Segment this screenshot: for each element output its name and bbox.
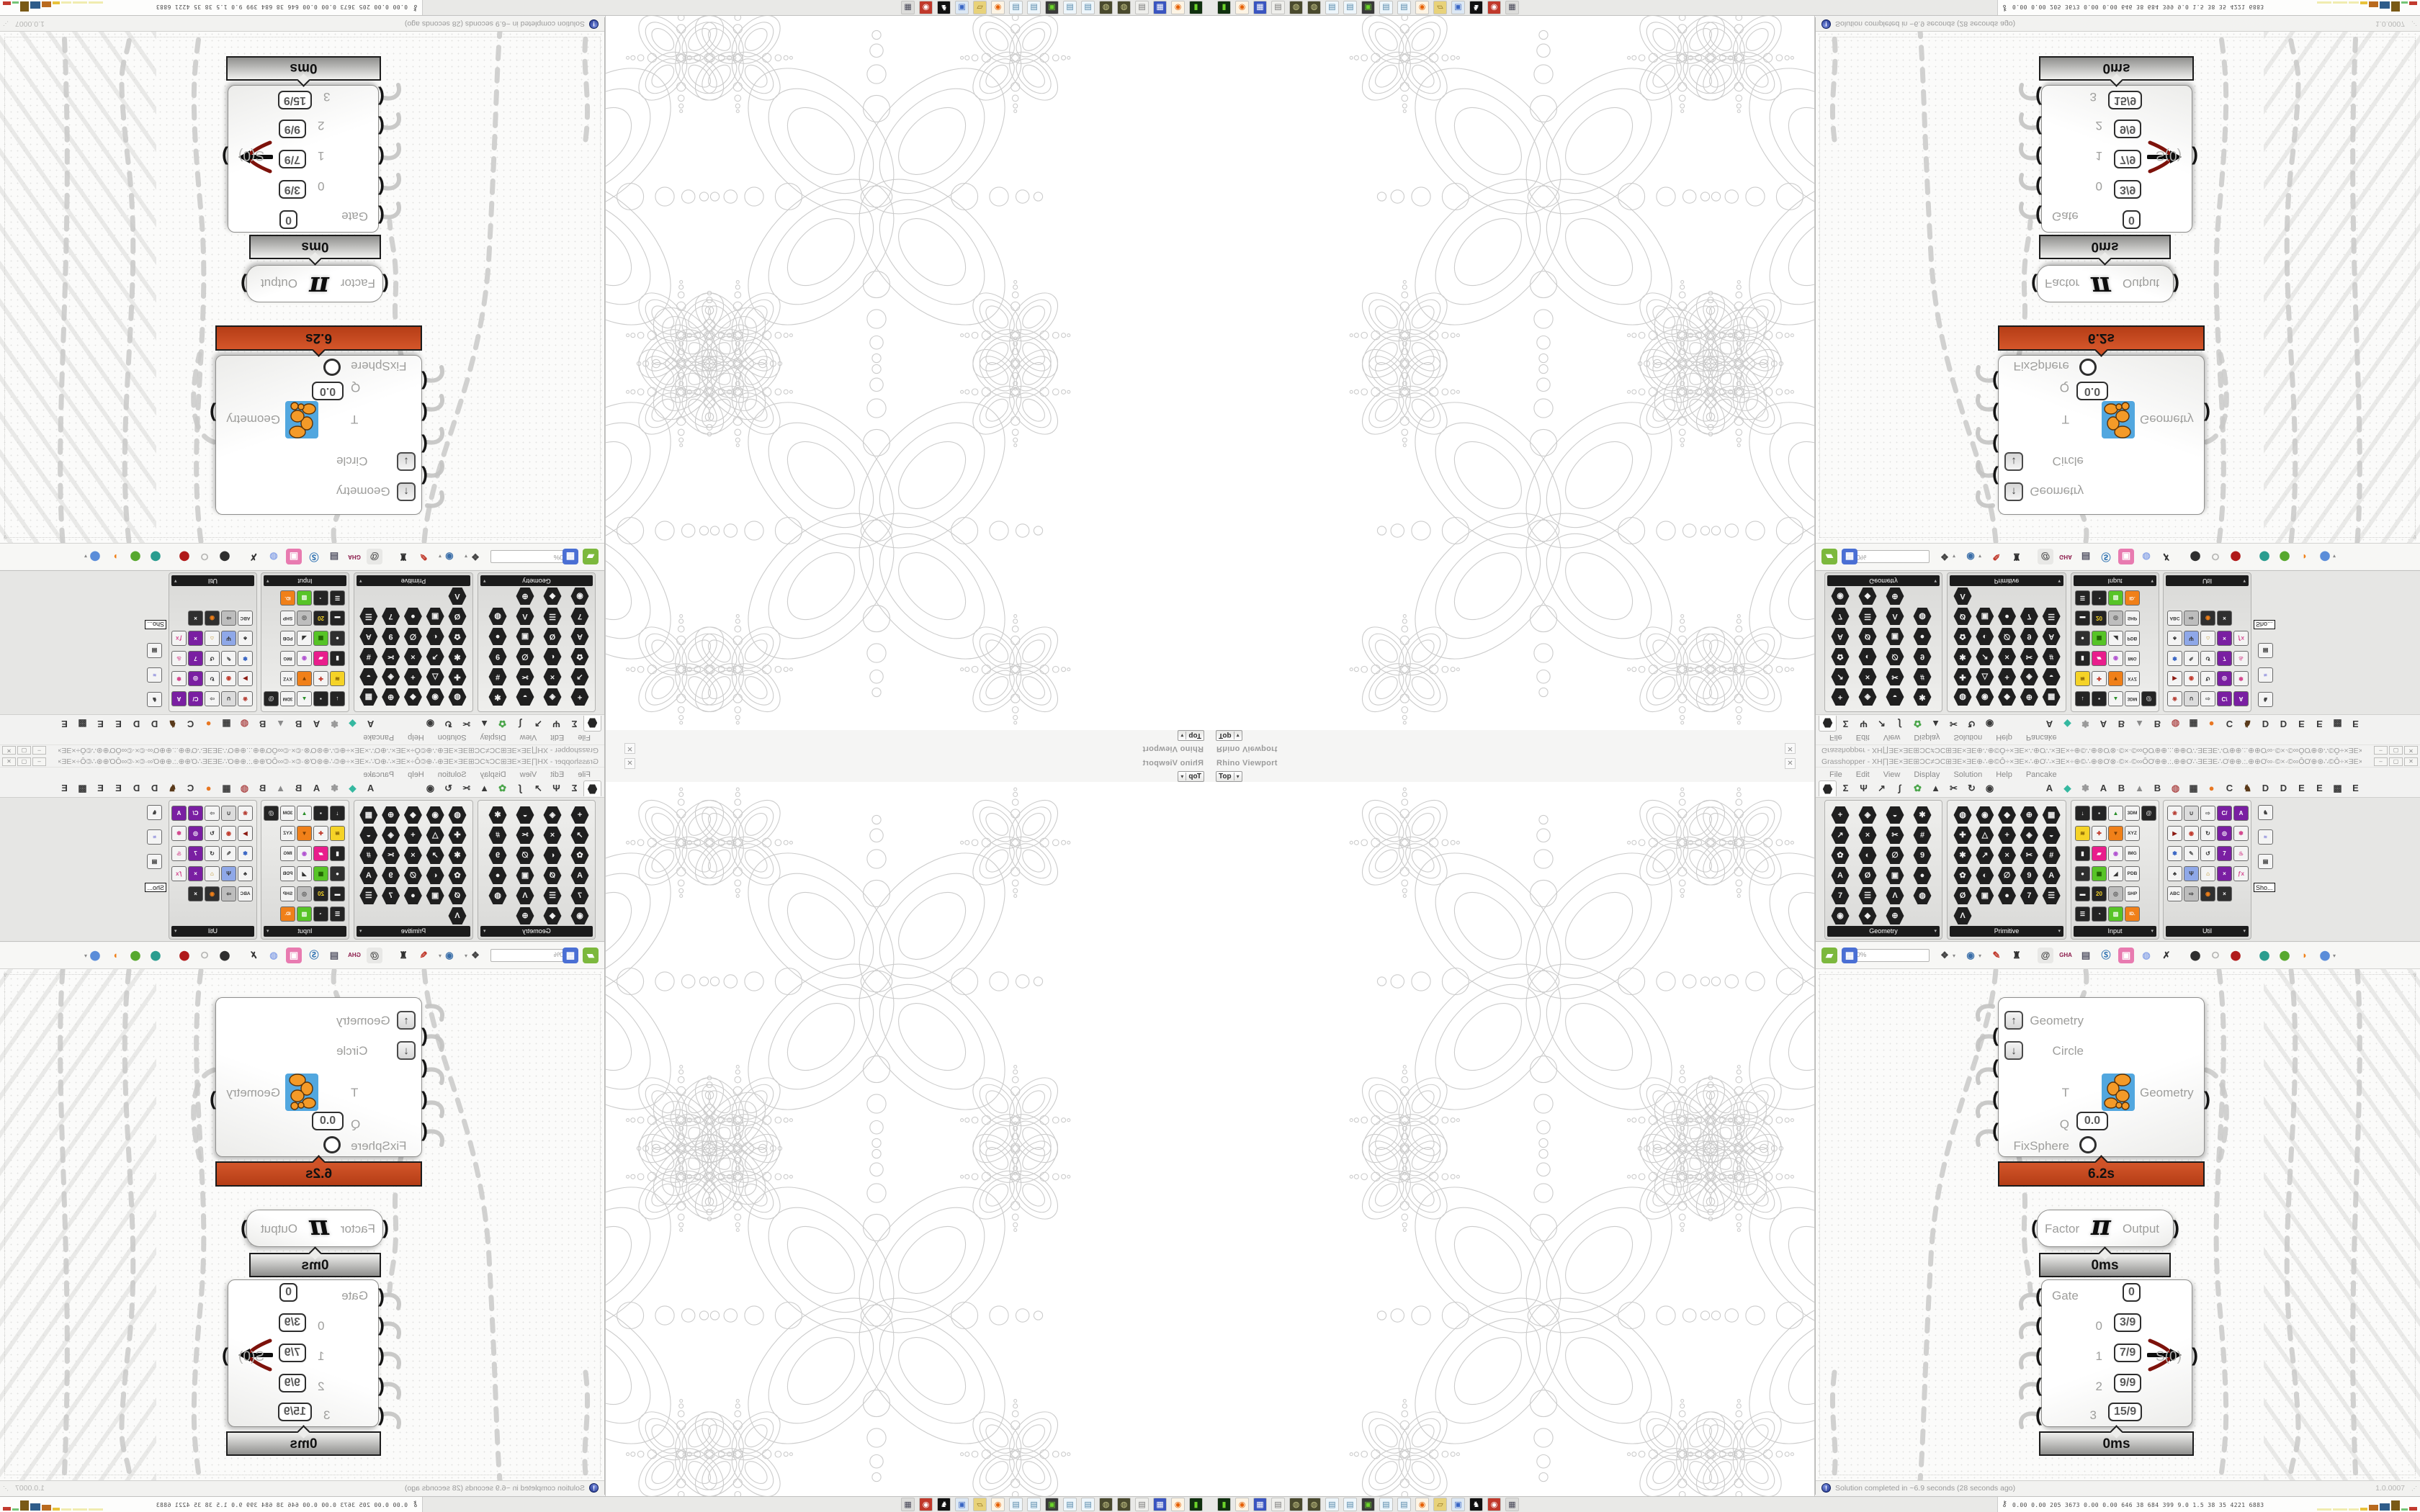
component-icon[interactable]: ☰ [330, 590, 345, 606]
component-icon[interactable]: @ [264, 806, 279, 821]
menu-item-edit[interactable]: Edit [550, 768, 564, 781]
component-icon[interactable]: ↻ [2200, 671, 2215, 686]
save-file-icon[interactable]: ▦ [1842, 549, 1857, 564]
fixsphere-toggle[interactable] [2079, 1136, 2097, 1153]
download-icon[interactable]: ↓ [397, 452, 416, 471]
component-icon[interactable]: ID. [2125, 906, 2140, 922]
output-hook[interactable]: ) [2173, 277, 2179, 292]
viewport-canvas[interactable] [605, 782, 1210, 1496]
component-icon[interactable]: ◉ [297, 651, 312, 666]
ribbon-group-label[interactable]: Geometry▾ [1827, 926, 1940, 937]
taskbar-app-plugin2-icon[interactable]: ◍ [1307, 1498, 1321, 1511]
gate-value-box[interactable]: 15/9 [278, 1403, 312, 1421]
component-icon[interactable]: ☰ [543, 886, 562, 905]
component-icon[interactable]: 3DM [280, 691, 295, 706]
component-icon[interactable]: ✱ [488, 688, 507, 706]
taskbar-app-display-icon[interactable]: ▣ [955, 1, 969, 14]
component-icon[interactable]: × [403, 647, 422, 666]
input-hook[interactable]: ( [1992, 469, 1999, 484]
taskbar-app-browser2-icon[interactable]: ◉ [991, 1, 1005, 14]
gh-tab-24[interactable]: E [109, 716, 127, 732]
component-icon[interactable]: ↓ [2075, 691, 2090, 706]
component-icon[interactable]: ∅ [1886, 647, 1904, 666]
component-icon[interactable]: IMG [2125, 651, 2140, 666]
gh-tab-5[interactable]: ✿ [1909, 780, 1927, 796]
menu-item-pancake[interactable]: Pancake [363, 768, 394, 781]
publish-at-icon[interactable]: @ [2038, 948, 2053, 963]
ribbon-group-label[interactable]: Input▾ [2074, 926, 2156, 937]
gh-tab-4[interactable]: ∫ [1891, 716, 1909, 732]
component-icon[interactable]: ▪ [313, 806, 328, 821]
wire-display-icon[interactable]: ✗ [246, 549, 261, 564]
component-icon[interactable]: ⊕ [382, 688, 400, 706]
viewport-mode-button[interactable]: Top ▾ [1216, 771, 1242, 782]
component-icon[interactable]: 9 [2020, 866, 2038, 885]
taskbar-app-badge-icon[interactable]: ◉ [919, 1498, 933, 1511]
open-file-icon[interactable]: ▰ [1821, 549, 1837, 564]
component-icon[interactable]: ✚ [448, 667, 467, 686]
component-icon[interactable]: ✿ [448, 866, 467, 885]
input-hook[interactable]: ( [421, 1028, 428, 1043]
wire-display-icon[interactable]: ✗ [246, 948, 261, 963]
chevron-down-icon[interactable]: ▾ [2333, 953, 2336, 959]
component-icon[interactable]: ▣ [1886, 627, 1904, 646]
component-icon[interactable]: SHP [280, 611, 295, 626]
release-notes-icon[interactable]: ▤ [2078, 948, 2094, 963]
component-icon[interactable]: @ [264, 691, 279, 706]
taskbar-app-notepad4-icon[interactable]: ▤ [1397, 1, 1411, 14]
gift-icon[interactable]: ▣ [286, 948, 302, 963]
component-icon[interactable]: ▮ [330, 651, 345, 666]
component-icon[interactable]: ● [2075, 866, 2090, 881]
gh-tab-16[interactable]: B [254, 780, 272, 796]
component-icon[interactable]: × [1858, 826, 1877, 845]
component-icon[interactable]: ◈ [382, 667, 400, 686]
gh-tab-8[interactable]: ↻ [1963, 780, 1981, 796]
ball-teal-icon[interactable]: ⬤ [2257, 549, 2272, 564]
taskbar-app-folder-icon[interactable]: ▱ [1433, 1, 1447, 14]
component-icon[interactable]: ● [330, 631, 345, 646]
gh-canvas[interactable]: ▿ ( ( ( ( ) ↑ Geometry ↓ Circle T [1816, 969, 2420, 1480]
component-icon[interactable]: ❃ [2167, 846, 2182, 861]
gh-tab-19[interactable]: ● [200, 780, 218, 796]
resize-grip[interactable]: ⋰ [2411, 1485, 2418, 1492]
input-hook[interactable]: ( [2035, 1378, 2042, 1392]
component-icon[interactable]: ▲ [297, 806, 312, 821]
component-icon[interactable]: ✱ [448, 846, 467, 865]
component-icon[interactable]: ☰ [2075, 906, 2090, 922]
ball-teal-icon[interactable]: ⬤ [148, 549, 163, 564]
menu-item-file[interactable]: File [578, 768, 591, 781]
component-icon[interactable]: Ψ [2184, 631, 2199, 646]
component-icon[interactable]: # [1913, 826, 1932, 845]
component-icon[interactable]: ● [488, 866, 507, 885]
gh-canvas[interactable]: ▿ ( ( ( ( ) ↑ Geometry ↓ Circle T [0, 32, 604, 543]
zoom-extents-icon[interactable]: ❖ [467, 549, 483, 564]
component-icon[interactable]: ◉ [1976, 806, 1994, 824]
ball-orange-icon[interactable]: ◗ [2297, 948, 2313, 963]
component-icon[interactable]: ABC [238, 611, 253, 626]
component-icon[interactable]: Λ [516, 607, 534, 626]
canvas-scroll-widget[interactable]: ▿ [2413, 971, 2416, 979]
taskbar-app-save-icon[interactable]: ▦ [1253, 1498, 1267, 1511]
component-icon[interactable]: ◎ [297, 611, 312, 626]
menu-item-pancake[interactable]: Pancake [363, 731, 394, 744]
component-icon[interactable]: XYZ [280, 671, 295, 686]
component-icon[interactable]: ⊕ [2020, 806, 2038, 824]
close-icon[interactable]: ✕ [2404, 746, 2418, 755]
component-icon[interactable]: ♨ [171, 651, 187, 666]
component-icon[interactable]: ✿ [1831, 647, 1850, 666]
gh-tab-19[interactable]: ● [200, 716, 218, 732]
gh-tab-11[interactable]: ◆ [2058, 780, 2076, 796]
input-hook[interactable]: ( [1992, 374, 1999, 389]
component-icon[interactable]: ▦ [2092, 631, 2107, 646]
component-icon[interactable]: ⇨ [2200, 806, 2215, 821]
taskbar-app-display-icon[interactable]: ▣ [1451, 1498, 1465, 1511]
gem-red-icon[interactable]: ⬤ [176, 948, 192, 963]
component-icon[interactable]: ◉ [205, 611, 220, 626]
publish-at-icon[interactable]: @ [367, 549, 382, 564]
component-icon[interactable]: ▥ [297, 590, 312, 606]
canvas-scroll-widget[interactable]: ▿ [4, 533, 7, 541]
chevron-down-icon[interactable]: ▾ [1849, 554, 1927, 560]
component-icon[interactable]: ✱ [488, 806, 507, 824]
menu-item-file[interactable]: File [578, 731, 591, 744]
component-icon[interactable]: ✿ [570, 846, 589, 865]
upload-icon[interactable]: ↑ [2004, 1011, 2023, 1030]
taskbar-app-browser2-icon[interactable]: ◉ [991, 1498, 1005, 1511]
component-icon[interactable]: Ø [1953, 607, 1972, 626]
output-hook[interactable]: ) [210, 406, 216, 420]
component-icon[interactable]: + [403, 667, 422, 686]
component-icon[interactable]: ↗ [426, 647, 444, 666]
chevron-down-icon[interactable]: ▾ [1953, 553, 1955, 559]
gh-tab-21[interactable]: ♞ [2238, 716, 2257, 732]
gh-tab-24[interactable]: E [2293, 716, 2311, 732]
ball-green-icon[interactable]: ⬤ [127, 549, 143, 564]
component-icon[interactable]: ⌂ [205, 866, 220, 881]
component-icon[interactable]: ☰ [2075, 590, 2090, 606]
gh-tab-13[interactable]: A [2094, 780, 2112, 796]
gh-tab-18[interactable]: ▦ [218, 716, 236, 732]
gh-tab-17[interactable]: ◍ [2166, 716, 2184, 732]
release-notes-icon[interactable]: ▤ [326, 948, 342, 963]
component-icon[interactable]: × [1998, 846, 2017, 865]
component-icon[interactable]: IMG [280, 651, 295, 666]
component-icon[interactable]: + [570, 688, 589, 706]
gh-tab-13[interactable]: A [308, 716, 326, 732]
component-icon[interactable]: ✎ [221, 651, 236, 666]
component-icon[interactable]: + [1831, 806, 1850, 824]
component-icon[interactable]: ✚ [448, 826, 467, 845]
taskbar-app-badge-icon[interactable]: ◉ [1487, 1498, 1501, 1511]
ball-blue-icon[interactable]: ⬤ [2317, 549, 2333, 564]
component-icon[interactable]: ◢ [297, 866, 312, 881]
component-icon[interactable]: ☰ [2042, 886, 2061, 905]
gh-tab-16[interactable]: B [254, 716, 272, 732]
component-icon[interactable]: ⇨ [205, 806, 220, 821]
component-icon[interactable]: ⇨ [2200, 691, 2215, 706]
ball-blue-icon[interactable]: ⬤ [87, 948, 103, 963]
component-icon[interactable]: A [2233, 691, 2249, 706]
menu-item-help[interactable]: Help [1996, 731, 2012, 744]
component-icon[interactable]: 7 [2020, 607, 2038, 626]
component-icon[interactable]: 9 [488, 647, 507, 666]
menu-item-display[interactable]: Display [480, 731, 506, 744]
gh-tab-18[interactable]: ▦ [2184, 716, 2202, 732]
component-icon[interactable]: ✿ [1953, 627, 1972, 646]
ribbon-group-label[interactable]: Primitive▾ [1950, 926, 2063, 937]
component-icon[interactable]: ● [403, 607, 422, 626]
component-icon[interactable]: ✎ [221, 846, 236, 861]
gate-value-box[interactable]: 9/9 [2114, 1374, 2141, 1392]
component-icon[interactable]: ◆ [1858, 587, 1877, 606]
component-icon[interactable]: ◒ [359, 826, 378, 845]
canvas-scroll-widget[interactable]: ▿ [2413, 533, 2416, 541]
menu-item-help[interactable]: Help [408, 731, 424, 744]
gh-tab-5[interactable]: ✿ [493, 716, 511, 732]
output-hook[interactable]: ) [222, 150, 228, 164]
component-icon[interactable]: ✿ [1953, 866, 1972, 885]
component-icon[interactable]: × [2217, 631, 2232, 646]
component-icon[interactable]: Λ [1886, 607, 1904, 626]
taskbar-app-monitor-icon[interactable]: ▣ [1045, 1498, 1059, 1511]
taskbar-app-calculator-icon[interactable]: ▦ [1505, 1498, 1519, 1511]
component-icon[interactable]: ⇨ [221, 886, 236, 901]
component-icon[interactable]: Λ [448, 587, 467, 606]
component-icon[interactable]: Ø [543, 866, 562, 885]
gem-white-icon[interactable]: ⭘ [2208, 549, 2223, 564]
chevron-down-icon[interactable]: ▾ [1849, 952, 1927, 958]
gate-value-box[interactable]: 3/9 [279, 180, 306, 199]
gh-tab-8[interactable]: ↻ [439, 716, 457, 732]
component-icon[interactable]: Ø [448, 886, 467, 905]
gh-tab-25[interactable]: E [2311, 780, 2329, 796]
component-icon[interactable]: ▥ [297, 906, 312, 922]
component-icon[interactable]: ▬ [2075, 886, 2090, 901]
component-icon[interactable]: ∅ [403, 866, 422, 885]
component-icon[interactable]: ∅ [1998, 866, 2017, 885]
gate-value-box[interactable]: 15/9 [2108, 91, 2142, 109]
gem-red-icon[interactable]: ⬤ [2228, 549, 2244, 564]
zoom-extents-icon[interactable]: ❖ [1937, 948, 1953, 963]
output-hook[interactable]: ) [2204, 1092, 2210, 1106]
gate-value-box[interactable]: 3/9 [2114, 180, 2141, 199]
taskbar-app-plugin-icon[interactable]: ◍ [1289, 1, 1303, 14]
component-icon[interactable]: ⊕ [1886, 906, 1904, 925]
component-icon[interactable]: ◆ [1998, 806, 2017, 824]
component-icon[interactable]: ◈ [2020, 826, 2038, 845]
chevron-down-icon[interactable]: ▾ [1978, 953, 1981, 959]
component-icon[interactable]: 9 [1913, 846, 1932, 865]
component-icon[interactable]: # [359, 647, 378, 666]
gh-tab-23[interactable]: D [127, 780, 145, 796]
gh-tab-26[interactable]: ▩ [73, 780, 91, 796]
ribbon-group-label[interactable]: Primitive▾ [357, 926, 470, 937]
fixsphere-toggle[interactable] [323, 359, 341, 376]
menu-item-edit[interactable]: Edit [550, 731, 564, 744]
component-icon[interactable]: ◉ [2200, 886, 2215, 901]
download-icon[interactable]: ↓ [2004, 452, 2023, 471]
upload-icon[interactable]: ↑ [397, 1011, 416, 1030]
maximize-icon[interactable]: ▢ [17, 757, 31, 766]
component-icon[interactable]: ☰ [359, 886, 378, 905]
component-icon[interactable]: ❃ [2167, 651, 2182, 666]
component-icon[interactable]: ↓ [330, 691, 345, 706]
taskbar-app-calculator-icon[interactable]: ▦ [1505, 1, 1519, 14]
gate-value-box[interactable]: 9/9 [279, 1374, 306, 1392]
component-icon[interactable]: IMG [2125, 846, 2140, 861]
open-file-icon[interactable]: ▰ [583, 549, 599, 564]
sketch-pen-icon[interactable]: ✎ [1989, 948, 2004, 963]
component-icon[interactable]: ▰ [313, 846, 328, 861]
ribbon-group-label[interactable]: Input▾ [264, 926, 346, 937]
component-icon[interactable]: ⇨ [221, 611, 236, 626]
wire-display-icon[interactable]: ✗ [2159, 948, 2174, 963]
taskbar-app-browser2-icon[interactable]: ◉ [1415, 1498, 1429, 1511]
component-icon[interactable]: △ [426, 667, 444, 686]
component-icon[interactable]: ◔ [2092, 590, 2107, 606]
ball-orange-icon[interactable]: ◗ [107, 948, 123, 963]
component-icon[interactable]: Λ [1953, 906, 1972, 925]
component-icon[interactable]: ▮ [2075, 846, 2090, 861]
gh-canvas[interactable]: ▿ ( ( ( ( ) ↑ Geometry ↓ Circle T [1816, 32, 2420, 543]
component-icon[interactable]: 9 [382, 866, 400, 885]
ball-teal-icon[interactable]: ⬤ [2257, 948, 2272, 963]
component-icon[interactable]: 20 [2092, 611, 2107, 626]
input-hook[interactable]: ( [2031, 1220, 2038, 1235]
sketch-pen-icon[interactable]: ✎ [416, 948, 431, 963]
taskbar-app-save-icon[interactable]: ▦ [1253, 1, 1267, 14]
zoom-extents-icon[interactable]: ❖ [1937, 549, 1953, 564]
component-icon[interactable]: ∪ [2184, 691, 2199, 706]
gha-installer-icon[interactable]: GHA [346, 549, 362, 564]
component-icon[interactable]: ↓ [330, 806, 345, 821]
gh-tab-13[interactable]: A [2094, 716, 2112, 732]
component-icon[interactable]: ▶ [2167, 826, 2182, 841]
component-icon[interactable]: ◉ [1831, 906, 1850, 925]
gate-value-box[interactable]: 7/9 [279, 1344, 306, 1362]
component-icon[interactable]: ▶ [238, 671, 253, 686]
component-icon[interactable]: 7 [382, 607, 400, 626]
input-hook[interactable]: ( [1992, 406, 1999, 420]
component-icon[interactable]: ● [2075, 631, 2090, 646]
taskbar-app-badge-icon[interactable]: ◉ [1487, 1, 1501, 14]
component-icon[interactable]: △ [426, 826, 444, 845]
gh-tab-24[interactable]: E [109, 780, 127, 796]
taskbar-app-plugin-icon[interactable]: ◍ [1289, 1498, 1303, 1511]
component-icon[interactable]: ◔ [313, 906, 328, 922]
gem-dark-icon[interactable]: ⬤ [2187, 549, 2203, 564]
menu-item-solution[interactable]: Solution [1953, 731, 1982, 744]
component-icon[interactable]: ABC [238, 886, 253, 901]
input-hook[interactable]: ( [378, 1289, 385, 1303]
component-icon[interactable]: ◍ [1913, 607, 1932, 626]
gh-tab-25[interactable]: E [91, 716, 109, 732]
gh-tab-15[interactable]: ▲ [2130, 780, 2148, 796]
component-icon[interactable]: ƒx [171, 866, 187, 881]
component-icon[interactable]: ▮ [330, 846, 345, 861]
gh-tab-20[interactable]: C [2220, 780, 2238, 796]
open-file-icon[interactable]: ▰ [1821, 948, 1837, 963]
component-icon[interactable]: 7 [2217, 651, 2232, 666]
input-hook[interactable]: ( [378, 180, 385, 194]
component-icon[interactable]: × [543, 667, 562, 686]
component-icon[interactable]: ◉ [297, 846, 312, 861]
gift-icon[interactable]: ▣ [2118, 948, 2134, 963]
gh-tab-2[interactable]: Ψ [1855, 780, 1873, 796]
component-icon[interactable]: ↗ [1831, 826, 1850, 845]
input-hook[interactable]: ( [2035, 209, 2042, 223]
taskbar-app-notepad4-icon[interactable]: ▤ [1009, 1498, 1023, 1511]
component-icon[interactable]: 7 [1831, 886, 1850, 905]
taskbar-app-notepad-icon[interactable]: ▤ [1081, 1, 1095, 14]
component-icon[interactable]: ≈ [147, 667, 162, 683]
component-icon[interactable]: ◈ [1858, 688, 1877, 706]
gate-value-box[interactable]: 9/9 [279, 120, 306, 138]
gh-tab-6[interactable]: ▲ [1927, 780, 1945, 796]
component-icon[interactable]: ☰ [330, 906, 345, 922]
component-icon[interactable]: 20 [313, 611, 328, 626]
taskbar-app-display-icon[interactable]: ▣ [1451, 1, 1465, 14]
gem-red-icon[interactable]: ⬤ [176, 549, 192, 564]
fixsphere-component[interactable]: ( ( ( ( ) ↑ Geometry ↓ Circle T [1998, 355, 2205, 515]
component-icon[interactable]: ♞ [147, 805, 162, 820]
taskbar-app-script-icon[interactable]: ▤ [1135, 1, 1149, 14]
component-icon[interactable]: ◉ [1831, 587, 1850, 606]
gh-tab-26[interactable]: ▩ [2329, 716, 2347, 732]
component-icon[interactable]: ▮ [2075, 651, 2090, 666]
component-icon[interactable]: ▼ [297, 671, 312, 686]
gh-tab-11[interactable]: ◆ [344, 780, 362, 796]
taskbar-app-monitor-icon[interactable]: ▣ [1361, 1498, 1375, 1511]
wire-display-icon[interactable]: ✗ [2159, 549, 2174, 564]
component-icon[interactable]: ✚ [1953, 826, 1972, 845]
component-icon[interactable]: ∪ [221, 691, 236, 706]
component-icon[interactable]: ◉ [570, 906, 589, 925]
component-icon[interactable]: ↗ [1976, 647, 1994, 666]
gh-tab-27[interactable]: E [55, 780, 73, 796]
component-icon[interactable]: ◔ [313, 590, 328, 606]
component-icon[interactable]: ◍ [448, 806, 467, 824]
gh-tab-8[interactable]: ↻ [1963, 716, 1981, 732]
close-icon[interactable]: ✕ [2, 757, 16, 766]
gh-tab-6[interactable]: ▲ [475, 716, 493, 732]
component-icon[interactable]: × [2217, 886, 2232, 901]
gh-tab-20[interactable]: C [2220, 716, 2238, 732]
component-icon[interactable]: XYZ [280, 826, 295, 841]
gate-value-box[interactable]: 7/9 [2114, 150, 2141, 168]
jacket-icon[interactable]: ♜ [395, 948, 411, 963]
grasshopper-title-bar[interactable]: Grasshopper - XH∏ƎE×ƎE⊞ƆC≠ƆC⊞ƎE×ƎE⊕∴⊕©Ô÷… [0, 744, 604, 756]
find-component-icon[interactable]: Ⓢ [2098, 549, 2114, 564]
release-notes-icon[interactable]: ▤ [326, 549, 342, 564]
hint-bulb-icon[interactable]: ◍ [2138, 549, 2154, 564]
gem-white-icon[interactable]: ⭘ [2208, 948, 2223, 963]
component-icon[interactable]: ⊕ [1886, 587, 1904, 606]
gh-tab-9[interactable]: ◉ [1981, 716, 1999, 732]
gh-tab-15[interactable]: ▲ [2130, 716, 2148, 732]
input-hook[interactable]: ( [421, 406, 428, 420]
component-icon[interactable]: ♨ [2233, 651, 2249, 666]
component-icon[interactable]: ◉ [426, 688, 444, 706]
grasshopper-title-bar[interactable]: Grasshopper - XH∏ƎE×ƎE⊞ƆC≠ƆC⊞ƎE×ƎE⊕∴⊕©Ô÷… [1816, 756, 2420, 768]
save-file-icon[interactable]: ▦ [1842, 948, 1857, 963]
gh-tab-3[interactable]: ↗ [1873, 780, 1891, 796]
gem-white-icon[interactable]: ⭘ [197, 948, 212, 963]
taskbar-app-plugin2-icon[interactable]: ◍ [1307, 1, 1321, 14]
